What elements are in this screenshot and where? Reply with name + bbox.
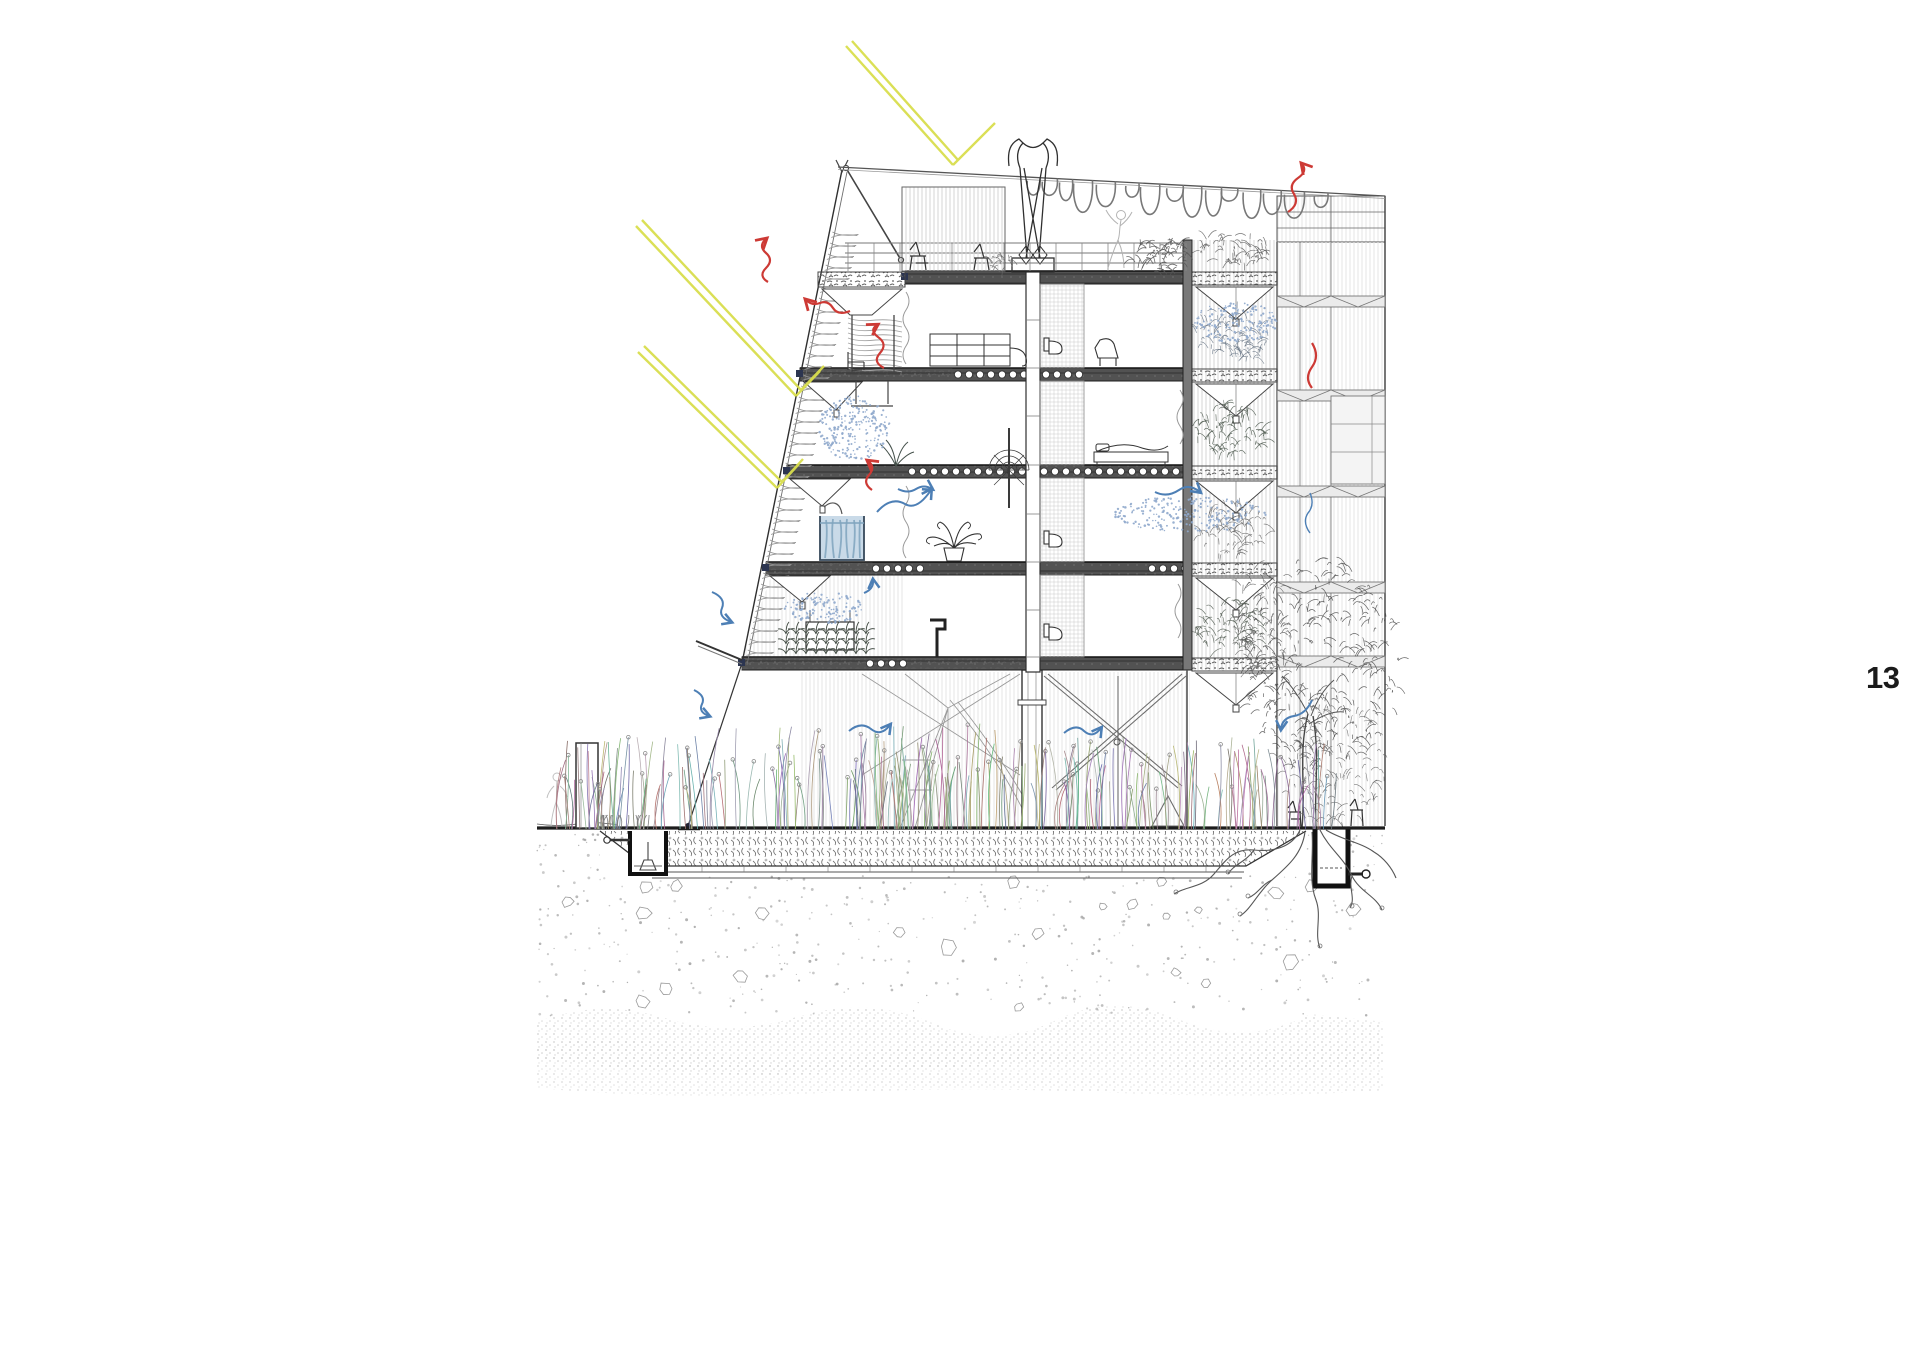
wall-fragment-story1 (930, 620, 945, 657)
floor-slab (905, 271, 1190, 284)
document-page: 13 (0, 0, 1920, 1357)
page-number: 13 (1866, 660, 1920, 696)
lower-left-wing (696, 641, 742, 664)
armchair-story4 (1095, 339, 1118, 366)
far-facade-elevation (1277, 196, 1385, 826)
spiral-stair (989, 428, 1029, 508)
building-section-drawing (0, 0, 1920, 1357)
water-tank (820, 503, 864, 560)
roof-person (1106, 210, 1132, 268)
potted-plant-story2 (926, 522, 981, 561)
undercroft-structure (800, 670, 1190, 828)
planter-zone (1187, 231, 1277, 712)
planted-soil-bed (600, 831, 1306, 878)
roof-railing (845, 243, 1186, 271)
cut-wall-right (1183, 240, 1192, 670)
plant-story3 (880, 440, 914, 466)
shelving-unit (930, 334, 1027, 366)
deep-soil-strata (537, 1006, 1385, 1096)
bed-story3 (1094, 444, 1168, 467)
